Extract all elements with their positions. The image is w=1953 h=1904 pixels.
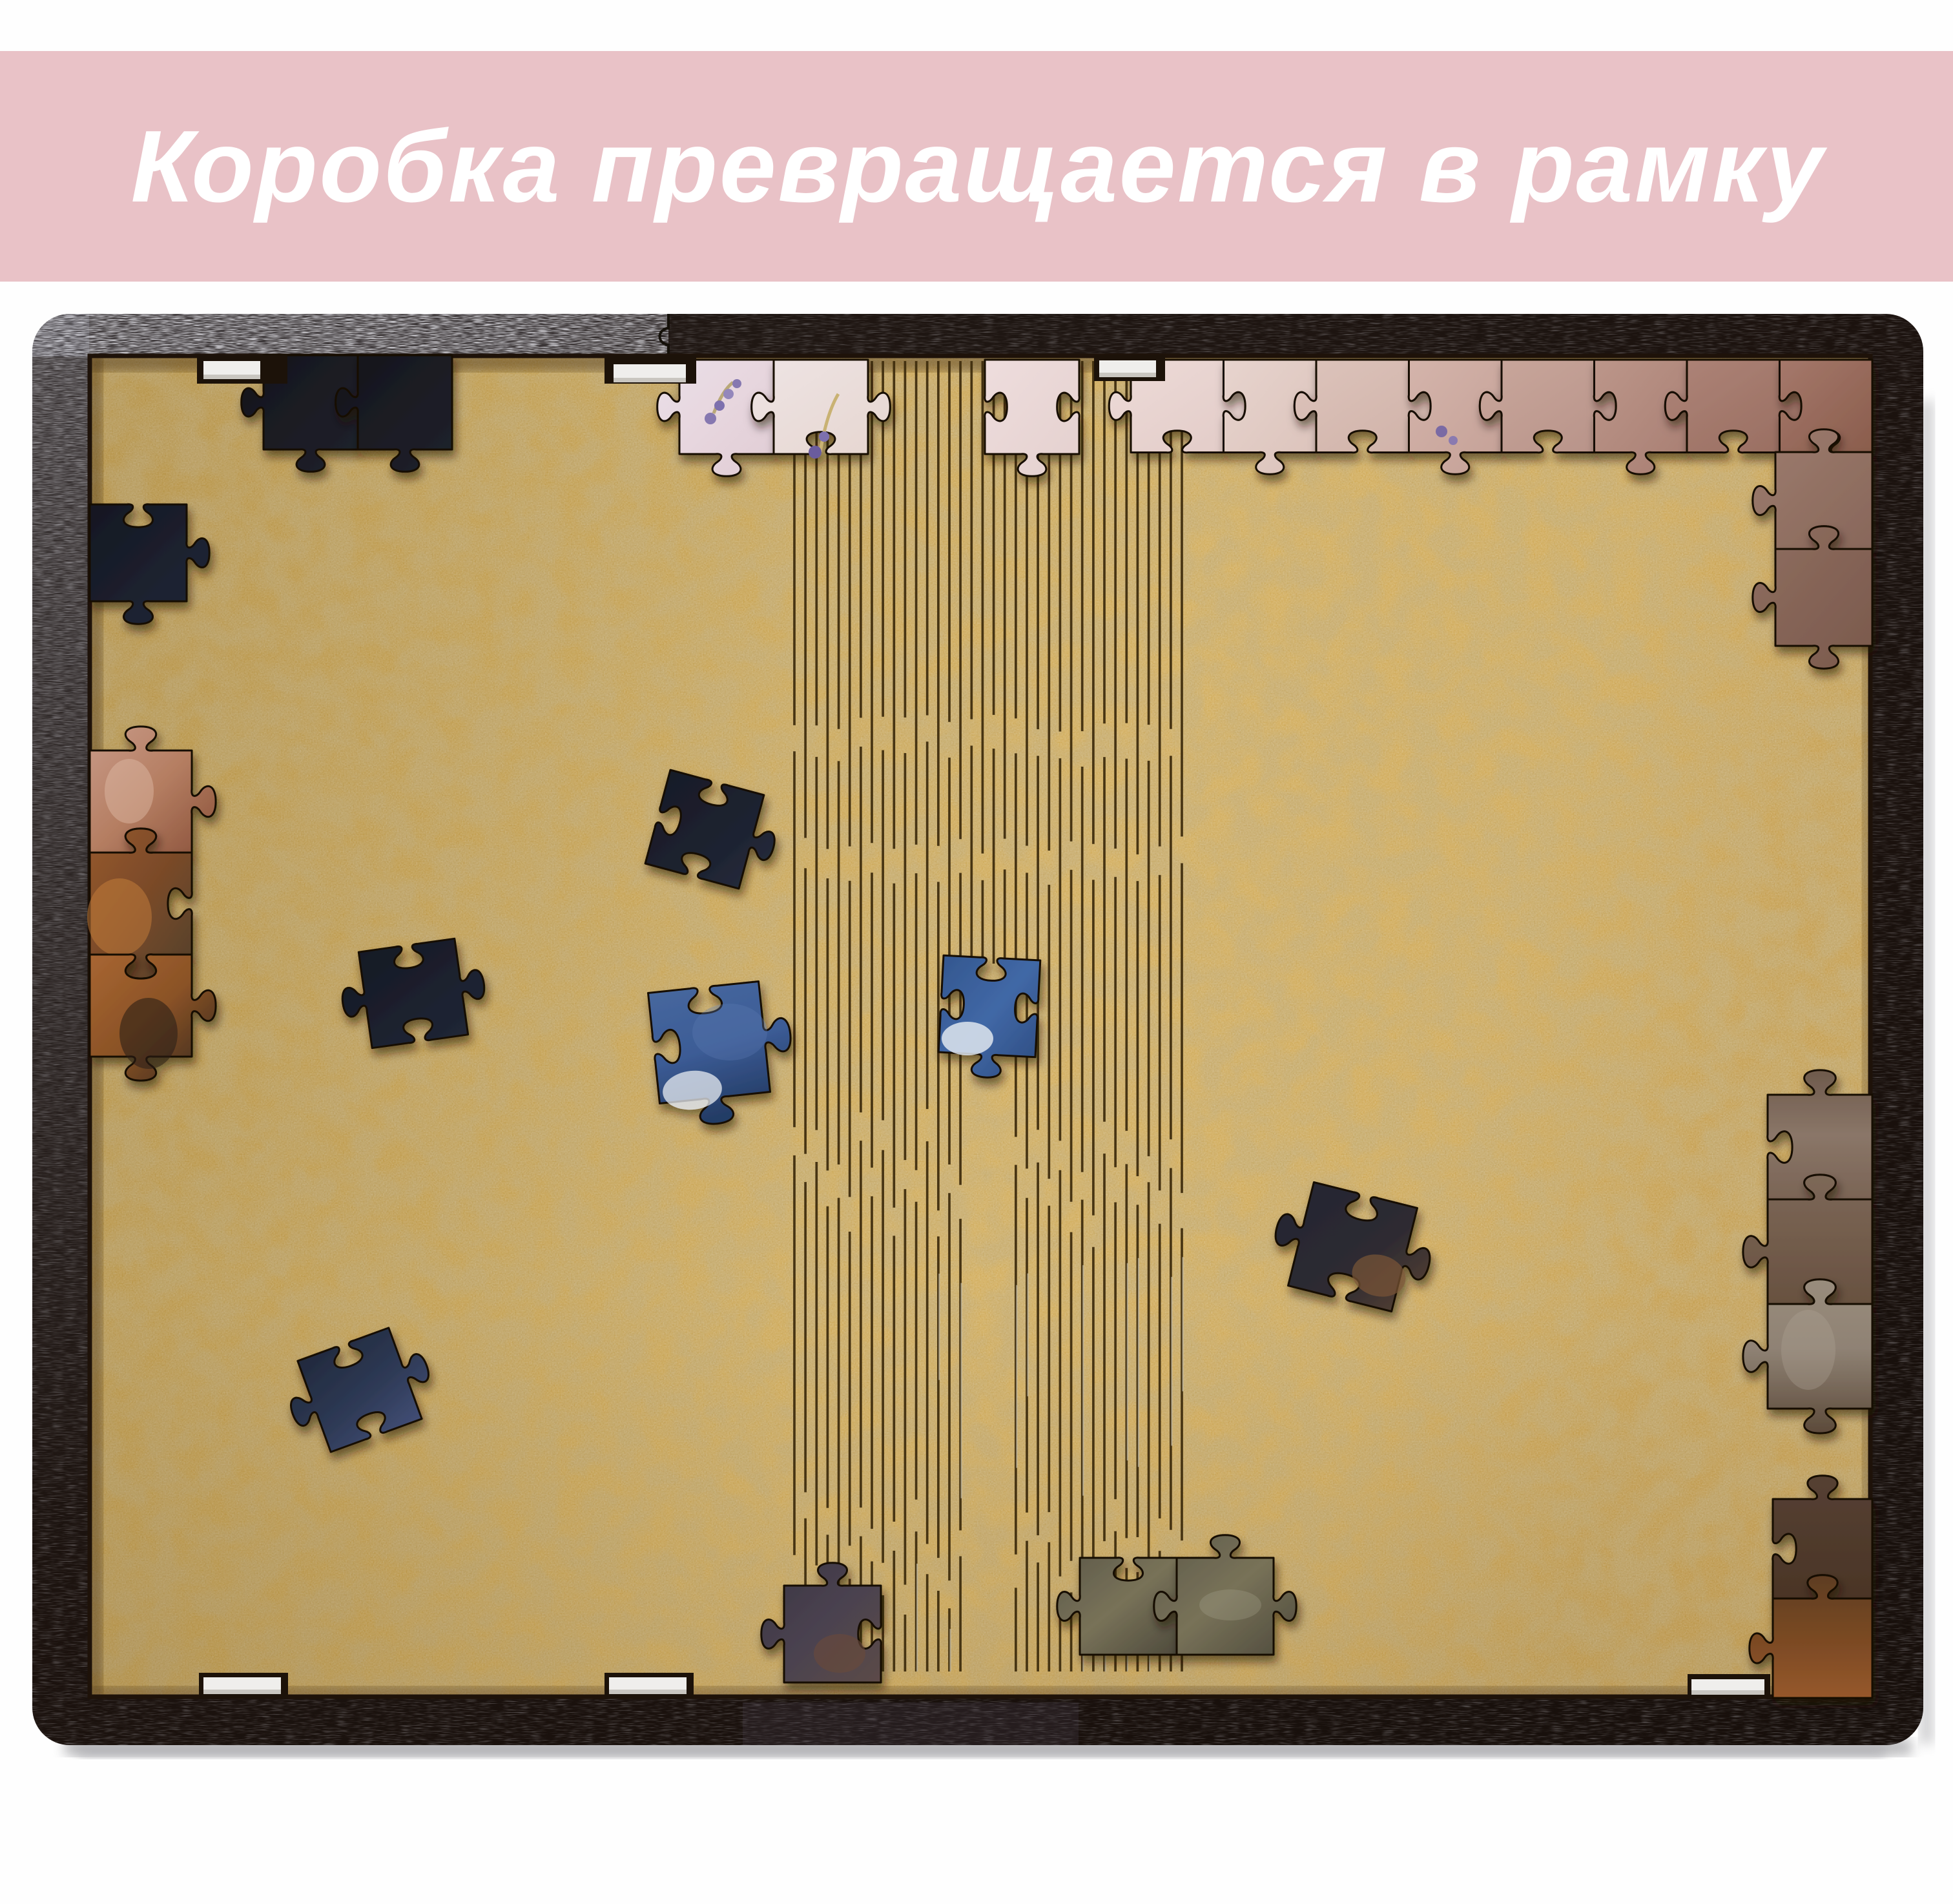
svg-text:Коробка превращается в рамку: Коробка превращается в рамку bbox=[131, 110, 1828, 223]
